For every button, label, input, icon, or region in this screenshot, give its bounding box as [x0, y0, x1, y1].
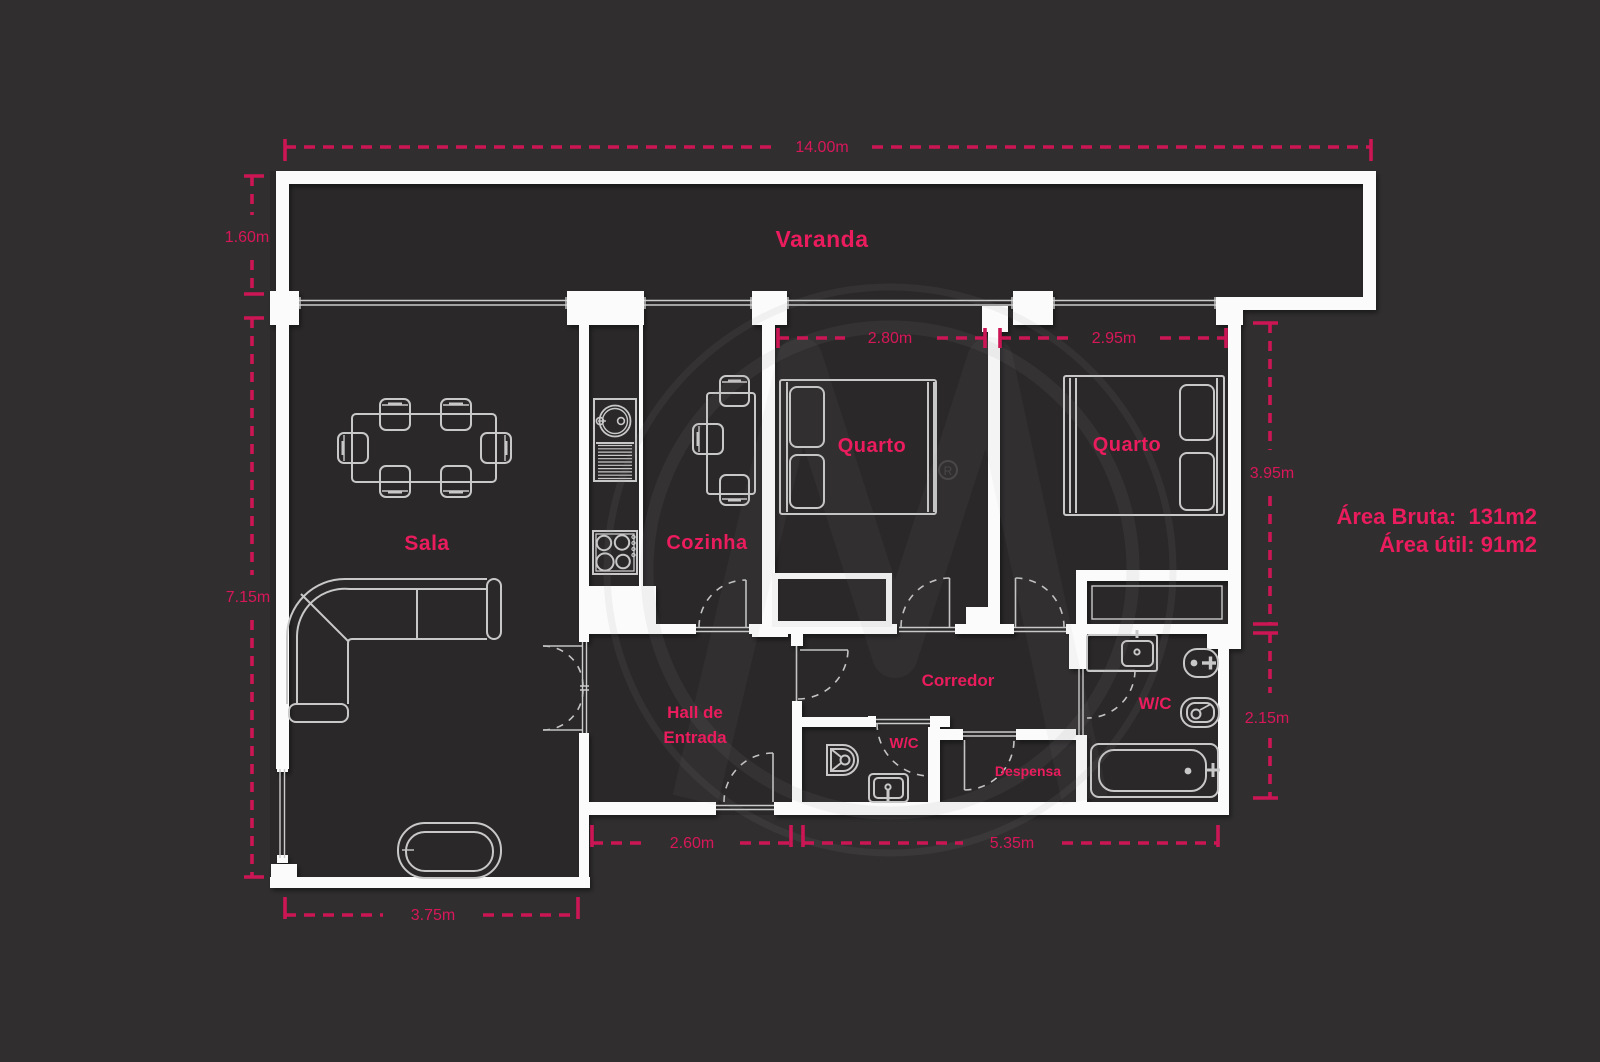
svg-text:Quarto: Quarto	[1093, 434, 1162, 456]
svg-text:7.15m: 7.15m	[226, 589, 270, 606]
svg-text:Hall de: Hall de	[667, 703, 723, 722]
svg-text:Quarto: Quarto	[838, 435, 907, 457]
svg-text:Cozinha: Cozinha	[666, 532, 748, 554]
svg-text:2.80m: 2.80m	[868, 330, 912, 347]
svg-text:2.95m: 2.95m	[1092, 330, 1136, 347]
svg-text:3.75m: 3.75m	[411, 907, 455, 924]
svg-text:Área útil: 91m2: Área útil: 91m2	[1379, 532, 1537, 557]
svg-text:3.95m: 3.95m	[1250, 465, 1294, 482]
svg-text:Corredor: Corredor	[922, 671, 995, 690]
svg-text:Despensa: Despensa	[995, 763, 1061, 779]
svg-text:Entrada: Entrada	[663, 728, 727, 747]
svg-text:W/C: W/C	[1138, 694, 1171, 713]
svg-text:5.35m: 5.35m	[990, 835, 1034, 852]
svg-text:W/C: W/C	[889, 735, 918, 752]
svg-text:Área Bruta: 131m2: Área Bruta: 131m2	[1336, 504, 1537, 529]
svg-text:R: R	[944, 464, 953, 478]
svg-text:Sala: Sala	[404, 532, 449, 555]
svg-text:2.60m: 2.60m	[670, 835, 714, 852]
svg-text:2.15m: 2.15m	[1245, 710, 1289, 727]
svg-text:14.00m: 14.00m	[795, 139, 848, 156]
svg-text:Varanda: Varanda	[776, 226, 869, 252]
svg-text:1.60m: 1.60m	[225, 229, 269, 246]
